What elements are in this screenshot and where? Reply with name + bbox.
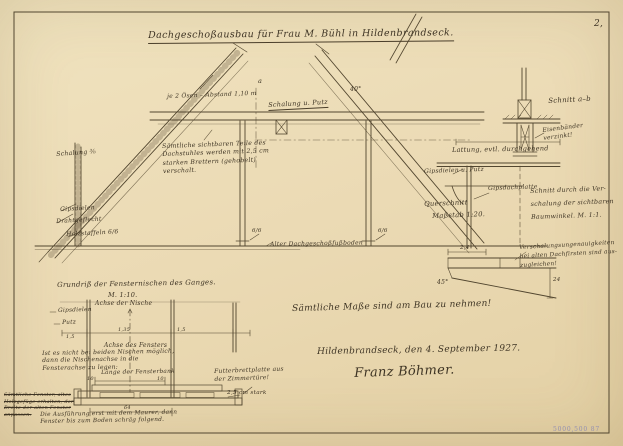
label-lattung: Lattung, evtl. durchgehend xyxy=(452,144,549,154)
drawing-sheet: Dachgeschoßausbau für Frau M. Bühl in Hi… xyxy=(0,0,623,446)
archive-stamp: 5000,500 87 xyxy=(553,426,600,434)
plan-scale: M. 1:10. xyxy=(108,291,137,299)
label-querschnitt: Querschnitt xyxy=(424,198,468,208)
angle-label-45: 45° xyxy=(437,279,448,287)
note-boarding: Sämtliche sichtbaren Teile des Dachstuhl… xyxy=(162,139,270,176)
section-marker-a: a xyxy=(258,77,262,85)
dim-10-right: 10 xyxy=(157,376,164,382)
dim-2-4: 2,4 xyxy=(460,245,470,252)
dim-1-5-left: 1,5 xyxy=(66,334,75,340)
plan-label-putz: Putz xyxy=(62,320,76,328)
dim-10-left: 10 xyxy=(87,376,94,382)
dim-1-5-right: 1,5 xyxy=(177,327,186,333)
label-2-5cm: 2,5 cm stark xyxy=(227,390,267,397)
label-achse-nische: Achse der Nische xyxy=(95,300,152,308)
signature: Franz Böhmer. xyxy=(354,363,455,383)
dim-24: 24 xyxy=(553,277,561,284)
plan-label-gipsdielen: Gipsdielen xyxy=(58,307,92,315)
note-futterbrett: Futterbrettplatte aus der Zimmertüre! xyxy=(214,366,284,384)
dim-post-left: 6/6 xyxy=(252,228,262,235)
note-tram-winkel: Schnitt durch die Ver- schalung der sich… xyxy=(530,182,614,224)
title-text: Dachgeschoßausbau für Frau M. Bühl in Hi… xyxy=(148,27,454,44)
note-ausfuehrung: Die Ausführung erst mit dem Maurer, dann… xyxy=(40,410,177,427)
angle-label-40: 40° xyxy=(350,86,361,94)
note-first-ausgleich: Verschalungsungenauigkeiten bei alten Da… xyxy=(519,239,618,270)
page-number: 2, xyxy=(594,19,603,30)
dim-1-35: 1,35 xyxy=(118,327,130,333)
dim-post-right: 6/6 xyxy=(378,228,388,235)
